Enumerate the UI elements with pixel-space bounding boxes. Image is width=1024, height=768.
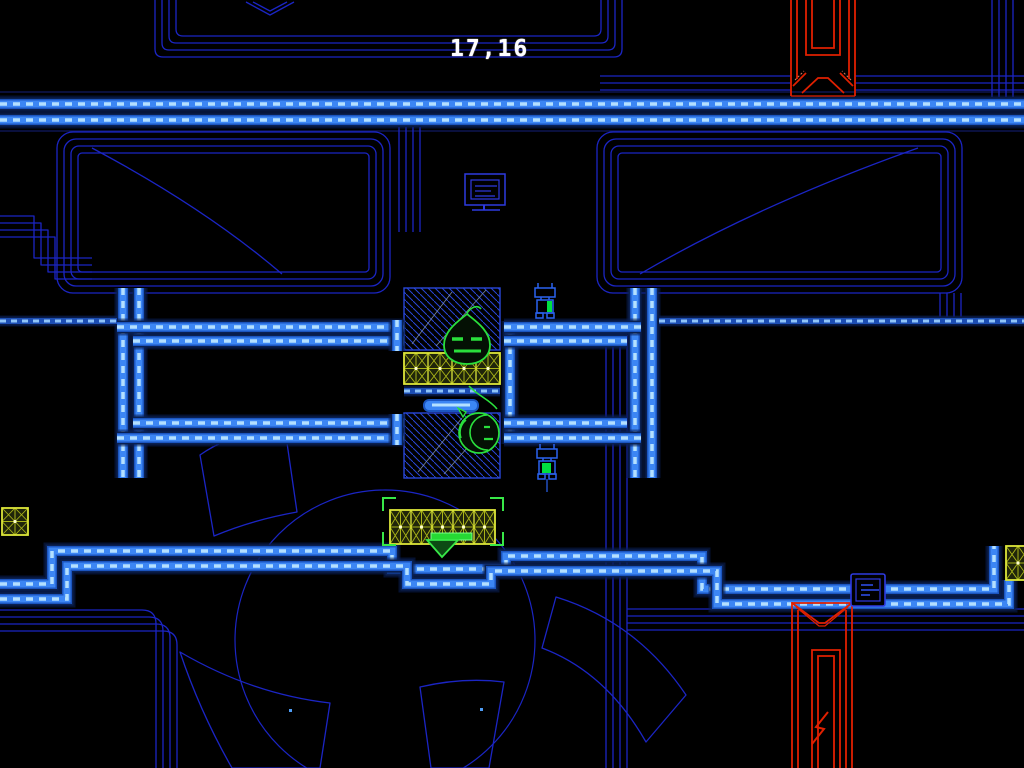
game-viewport[interactable]: 17,16 bbox=[0, 0, 1024, 768]
scene-objects bbox=[851, 574, 885, 606]
game-canvas bbox=[0, 0, 1024, 768]
hud-coordinates: 17,16 bbox=[450, 36, 529, 62]
wall-rails bbox=[0, 104, 1024, 604]
block-grid bbox=[1006, 546, 1024, 580]
block-grid bbox=[2, 508, 28, 535]
